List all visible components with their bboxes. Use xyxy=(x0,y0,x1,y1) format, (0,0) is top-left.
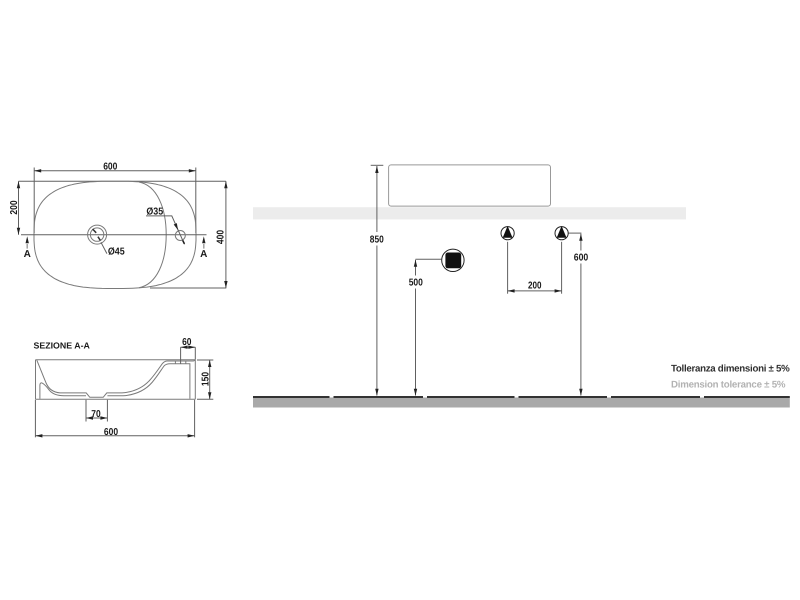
svg-text:200: 200 xyxy=(9,200,20,215)
svg-text:600: 600 xyxy=(574,253,589,264)
svg-text:Dimension tolerance ± 5%: Dimension tolerance ± 5% xyxy=(671,380,786,391)
svg-text:150: 150 xyxy=(200,372,211,387)
svg-text:600: 600 xyxy=(104,427,119,438)
svg-text:400: 400 xyxy=(215,230,226,245)
svg-text:Ø45: Ø45 xyxy=(108,246,125,257)
svg-text:A: A xyxy=(200,249,207,260)
svg-text:600: 600 xyxy=(103,162,118,173)
svg-text:60: 60 xyxy=(182,337,192,348)
svg-text:500: 500 xyxy=(409,278,424,289)
svg-text:A: A xyxy=(24,249,31,260)
svg-text:70: 70 xyxy=(91,409,101,420)
svg-text:Ø35: Ø35 xyxy=(146,206,163,217)
svg-text:SEZIONE A-A: SEZIONE A-A xyxy=(34,341,91,351)
svg-text:Tolleranza dimensioni ± 5%: Tolleranza dimensioni ± 5% xyxy=(671,364,790,375)
svg-text:850: 850 xyxy=(370,235,384,246)
svg-text:200: 200 xyxy=(528,280,542,291)
